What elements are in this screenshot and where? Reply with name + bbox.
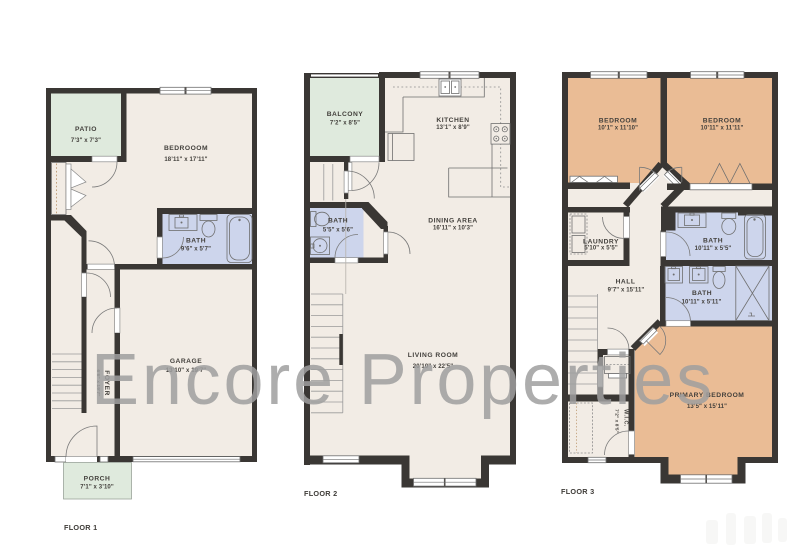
svg-text:BATH: BATH: [703, 238, 723, 245]
svg-text:BATH: BATH: [328, 218, 348, 225]
svg-text:BEDROOM: BEDROOM: [703, 118, 741, 125]
svg-text:HALL: HALL: [616, 279, 636, 286]
svg-text:10’11" x 5’5": 10’11" x 5’5": [695, 246, 732, 252]
svg-text:7’2" x 8’5": 7’2" x 8’5": [330, 121, 360, 127]
svg-text:BATH: BATH: [186, 238, 206, 245]
svg-text:BEDROOOM: BEDROOOM: [164, 145, 208, 152]
svg-text:9’7" x 15’11": 9’7" x 15’11": [608, 288, 645, 294]
svg-text:PATIO: PATIO: [75, 126, 97, 133]
svg-text:PORCH: PORCH: [84, 476, 111, 483]
svg-text:FLOOR 2: FLOOR 2: [304, 489, 337, 498]
svg-text:10’1" x 11’10": 10’1" x 11’10": [598, 126, 638, 132]
svg-text:5’5" x 5’6": 5’5" x 5’6": [323, 228, 353, 234]
svg-text:13’1" x 8’9": 13’1" x 8’9": [436, 125, 470, 131]
svg-text:LAUNDRY: LAUNDRY: [583, 239, 619, 246]
svg-text:10’11" x 11’11": 10’11" x 11’11": [701, 126, 744, 132]
svg-text:FLOOR 1: FLOOR 1: [64, 523, 97, 532]
svg-text:18’11" x 17’11": 18’11" x 17’11": [164, 157, 207, 163]
svg-text:10’11" x 5’11": 10’11" x 5’11": [682, 300, 722, 306]
svg-text:Encore Properties: Encore Properties: [91, 340, 715, 420]
svg-text:BALCONY: BALCONY: [327, 111, 364, 118]
svg-text:FLOOR 3: FLOOR 3: [561, 487, 594, 496]
svg-text:7’1" x 3’10": 7’1" x 3’10": [80, 485, 114, 491]
svg-text:16’11" x 10’3": 16’11" x 10’3": [433, 226, 473, 232]
svg-text:7’3" x 7’3": 7’3" x 7’3": [71, 138, 101, 144]
svg-text:KITCHEN: KITCHEN: [436, 117, 469, 124]
svg-text:BEDROOM: BEDROOM: [599, 118, 637, 125]
svg-text:9’6" x 5’7": 9’6" x 5’7": [181, 247, 211, 253]
svg-text:BATH: BATH: [692, 290, 712, 297]
svg-text:DINING AREA: DINING AREA: [428, 218, 477, 225]
svg-text:5’10" x 5’5": 5’10" x 5’5": [584, 246, 618, 252]
